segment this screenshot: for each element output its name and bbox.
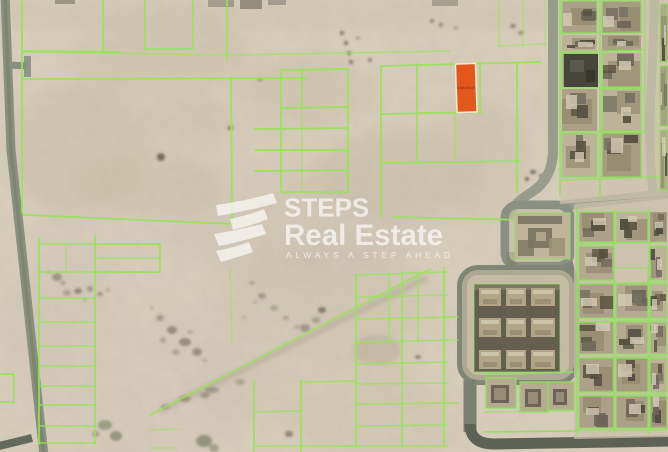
svg-text:FOR SALE: FOR SALE: [458, 86, 476, 91]
svg-text:ALWAYS A STEP AHEAD: ALWAYS A STEP AHEAD: [286, 250, 454, 260]
svg-text:STEPS: STEPS: [284, 193, 369, 223]
svg-text:Real Estate: Real Estate: [284, 219, 443, 252]
